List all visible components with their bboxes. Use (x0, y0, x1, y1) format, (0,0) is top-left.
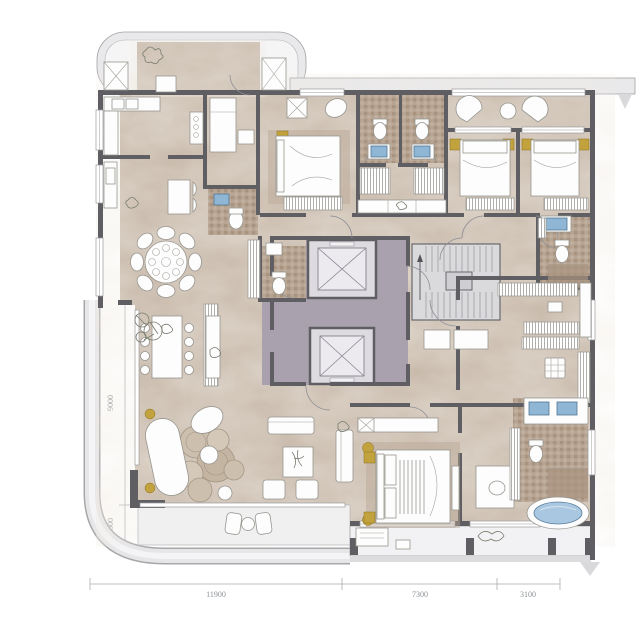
sink (557, 402, 577, 415)
wardrobe (284, 197, 342, 210)
shelf (580, 283, 591, 337)
wardrobe (466, 198, 514, 210)
wardrobe-row (524, 322, 579, 334)
sink (371, 146, 387, 157)
bed (276, 136, 340, 196)
bar-stool (185, 324, 194, 333)
dim-bottom-7300: 7300 (412, 590, 428, 599)
bar-stool (141, 366, 150, 375)
headboard (277, 140, 284, 192)
ottoman (200, 446, 218, 464)
elevator-shaft-1 (308, 240, 376, 298)
armchair (296, 480, 318, 499)
nook-table (168, 180, 190, 214)
closet-strip (510, 428, 520, 500)
dim-bottom-11900: 11900 (206, 590, 226, 599)
sink (414, 146, 430, 157)
closet-corner (360, 168, 390, 194)
side-sofa (336, 430, 353, 482)
master-balcony (350, 526, 591, 562)
wardrobe-row (498, 283, 578, 296)
pillow (385, 488, 396, 518)
maid-sink (214, 194, 229, 205)
bar-stool (185, 352, 194, 361)
lounge-chair (356, 528, 388, 546)
island-counter (152, 316, 182, 378)
pillows (534, 141, 576, 153)
toilet (416, 123, 429, 140)
wardrobe-column (578, 352, 590, 402)
nightstand (364, 512, 375, 523)
wardrobe-row (522, 337, 579, 349)
elevator-shaft-2 (310, 328, 374, 384)
ottoman (545, 358, 565, 378)
toilet (556, 246, 569, 263)
wardrobe (544, 198, 588, 210)
sink (545, 218, 567, 230)
dining-table (145, 241, 187, 283)
bench (452, 466, 459, 510)
nightstand (450, 139, 461, 150)
bar-stool (141, 352, 150, 361)
closet (248, 240, 260, 298)
sink (529, 402, 549, 415)
side-table (238, 130, 254, 144)
kitchen-sink (126, 99, 138, 109)
dim-bottom-3100: 3100 (520, 590, 536, 599)
drawer (548, 302, 562, 312)
dim-left-9000: 9000 (106, 395, 115, 411)
terrace-chair (225, 512, 243, 535)
floor-lamp (145, 409, 155, 419)
terrace-chair (255, 512, 273, 535)
headboard (377, 454, 384, 519)
round-table (500, 103, 516, 119)
kitchen-sink (112, 99, 124, 109)
back-counter (206, 316, 220, 378)
terrace-table (242, 518, 255, 531)
desk (156, 76, 176, 92)
balcony-bottom-right-notch (580, 562, 600, 576)
ottoman (218, 486, 232, 500)
dimension-bottom: 11900 7300 3100 (90, 578, 560, 599)
dining-room (131, 227, 202, 298)
console (424, 330, 450, 349)
sink (106, 168, 115, 184)
armchair (263, 480, 285, 499)
floor-lamp (145, 483, 155, 493)
bar-stool (185, 366, 194, 375)
nightstand (578, 139, 589, 150)
pillow (385, 455, 396, 485)
closet-corner (414, 168, 444, 194)
single-bed (210, 98, 236, 152)
bar-stool (141, 324, 150, 333)
sofa (268, 417, 314, 434)
console (454, 330, 488, 349)
bar-stool (185, 338, 194, 347)
toilet (273, 278, 286, 295)
toilet (530, 446, 543, 463)
shower (548, 468, 588, 498)
pillows (463, 141, 507, 153)
toilet (374, 123, 387, 140)
desk-chair (489, 481, 505, 495)
vanity (266, 243, 282, 255)
floor-plan-canvas: 2050 9200 9000 1800 11900 7300 3100 (0, 0, 640, 633)
nightstand (364, 452, 375, 463)
